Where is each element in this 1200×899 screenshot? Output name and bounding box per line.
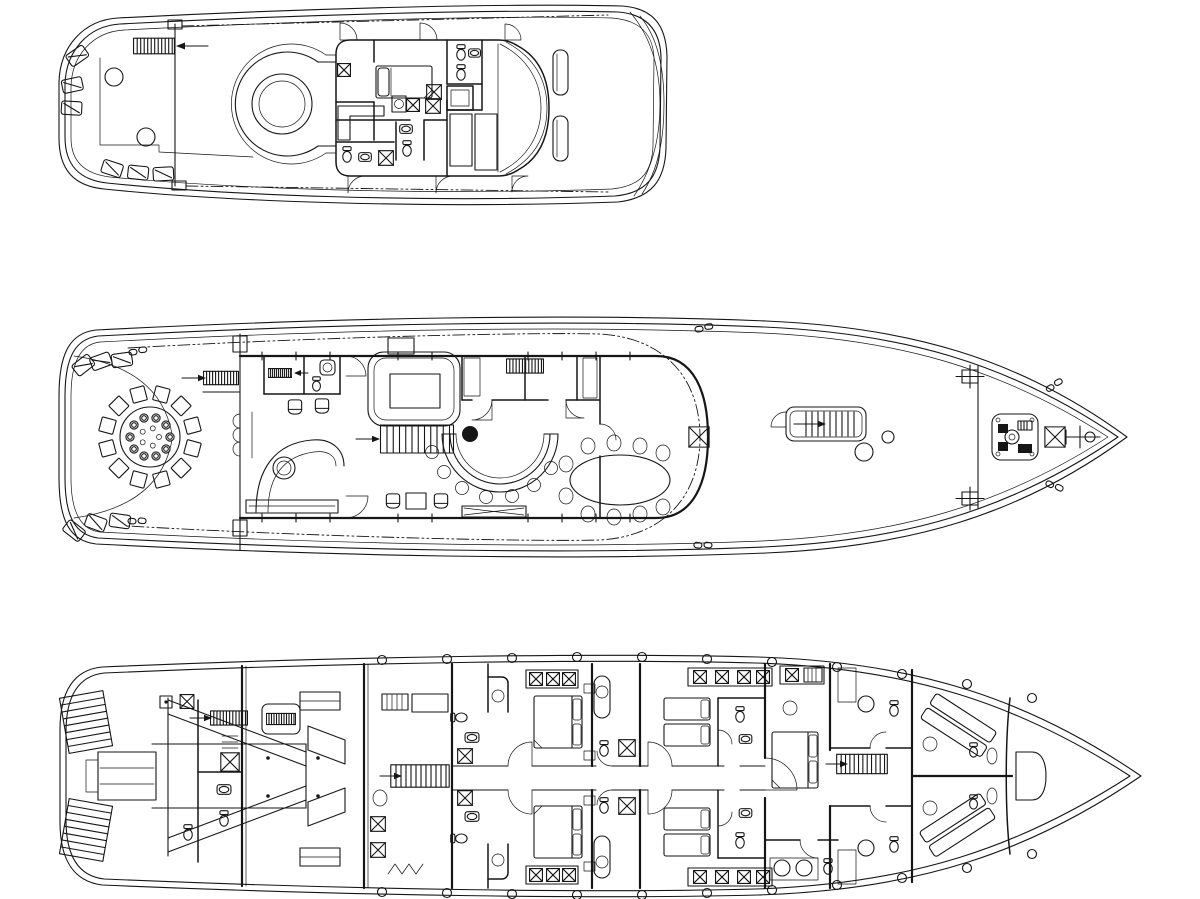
single-bed [664, 834, 710, 856]
door-swing [870, 806, 886, 822]
lazarette-garage [59, 666, 345, 886]
door-swing [508, 790, 532, 814]
sink [359, 153, 372, 162]
pantry-stairs [268, 369, 308, 378]
curved-sofa [246, 440, 344, 513]
fwd-stairs [826, 754, 887, 773]
nightstand [584, 862, 595, 871]
hanging-locker [388, 864, 423, 874]
toilet [736, 707, 745, 722]
cleat [694, 541, 713, 550]
round-dining-table [99, 386, 202, 489]
deckhouse [336, 23, 549, 193]
bar-stool [506, 490, 519, 503]
bar-stool [456, 482, 469, 495]
sink [400, 125, 413, 134]
laundry-xbox [371, 843, 386, 858]
nightstand [584, 684, 595, 693]
armchair [386, 494, 399, 508]
cocktail-table [105, 68, 123, 86]
crew-service-area [371, 664, 452, 888]
fwd-lobby [826, 664, 912, 888]
sink [858, 696, 874, 712]
door-swing [505, 24, 521, 40]
top-deck-plan [59, 5, 667, 204]
laundry-xbox [371, 817, 386, 832]
main-salon [246, 338, 460, 518]
toilet [403, 141, 412, 156]
chair [171, 396, 191, 416]
nightstand [584, 751, 595, 760]
counter [838, 668, 856, 702]
toilet [451, 834, 467, 843]
storage-xbox [180, 695, 194, 709]
counter [838, 850, 856, 884]
sun-cushion [61, 76, 84, 93]
locker [475, 114, 497, 170]
stairs-up [182, 371, 240, 392]
foredeck [771, 365, 1100, 510]
captain-bed [376, 66, 432, 98]
cocktail-table [137, 128, 155, 146]
crew-bunks [919, 793, 996, 857]
door-swing [600, 424, 616, 440]
anchor-windlass [992, 414, 1038, 460]
midship-bathrooms [592, 664, 640, 888]
chain-locker [1016, 752, 1046, 800]
shower [395, 100, 404, 109]
door-swing [765, 758, 797, 790]
top-deck-hull [59, 5, 667, 204]
deck-chair [84, 513, 108, 533]
toilet [736, 833, 745, 848]
transom-door [98, 752, 156, 800]
door-swing [340, 23, 357, 40]
bar-stool [438, 466, 451, 479]
stbd-fwd-twin-cabin [664, 790, 772, 886]
chair [130, 471, 148, 489]
shower-xbox [619, 740, 636, 757]
locker [450, 114, 472, 166]
door-swing [346, 496, 368, 518]
deck-box-xbox [689, 427, 709, 447]
cleat [1045, 479, 1064, 493]
door-swing [597, 751, 612, 766]
sun-cushion [153, 167, 174, 181]
chair [184, 440, 202, 458]
stbd-aft-guest-cabin [451, 791, 595, 888]
single-bed [664, 808, 710, 830]
toilet [451, 713, 467, 722]
port-fwd-twin-cabin [664, 668, 772, 766]
door-swing [718, 812, 732, 826]
swim-steps [59, 799, 112, 862]
formal-dining [559, 427, 709, 525]
bulwark-fitting [956, 365, 984, 388]
deck-hatch [855, 443, 873, 461]
shower-xbox [619, 798, 636, 815]
engine-room [262, 664, 368, 888]
skylight-atrium [368, 338, 460, 426]
sink [774, 860, 790, 876]
chair [171, 458, 191, 478]
bow-staff [1066, 426, 1100, 448]
helm-seats [553, 50, 568, 161]
storage-xbox [338, 64, 351, 77]
door-swing [420, 23, 437, 40]
credenza [462, 506, 526, 517]
deck-hatch [882, 431, 894, 443]
chair [109, 396, 129, 416]
bar [426, 426, 559, 504]
hot-tub [231, 44, 336, 164]
door-swing [718, 730, 732, 744]
yacht-deck-plan [0, 0, 1200, 899]
toilet [600, 798, 609, 813]
vip-cabin [765, 664, 838, 888]
console-desk [338, 106, 384, 140]
door-swing [870, 732, 886, 748]
companionway [771, 407, 866, 441]
chair [109, 458, 129, 478]
sun-cushion [100, 159, 124, 178]
top-deck-aft-lounge [61, 20, 253, 190]
door-swing [472, 400, 492, 420]
toilet [313, 377, 321, 391]
sink [923, 737, 937, 751]
double-bed [534, 806, 582, 858]
sink [465, 812, 479, 822]
armchair [434, 494, 447, 508]
shower-xbox [458, 749, 473, 764]
column [462, 426, 478, 442]
toilet [457, 45, 466, 60]
chair [153, 386, 171, 404]
sink [858, 840, 874, 856]
chair [184, 417, 202, 435]
windshield [500, 44, 541, 172]
sink [923, 801, 937, 815]
storage-xbox [426, 99, 441, 114]
sink [373, 790, 387, 806]
nightstand [584, 796, 595, 805]
toilet [457, 65, 466, 80]
toilet [890, 837, 899, 852]
storage-xbox [427, 85, 442, 100]
sink [217, 785, 231, 795]
window-mullions [262, 352, 630, 522]
lower-deck-plan [59, 653, 1141, 899]
door-swing [648, 790, 672, 814]
sink [739, 809, 752, 818]
corridor-stairs [380, 765, 449, 787]
galley-pantry [462, 356, 616, 518]
drawing-sheet [0, 0, 1200, 899]
sink [465, 733, 479, 743]
counter [583, 358, 597, 398]
sun-cushion [127, 165, 149, 180]
counter [464, 358, 480, 396]
shower-xbox [458, 791, 473, 806]
sink [596, 856, 608, 868]
door-swing [436, 176, 453, 193]
sink [783, 701, 797, 715]
toilet [890, 701, 899, 716]
port-aft-guest-cabin [451, 664, 595, 763]
sink [596, 686, 608, 698]
chair [99, 440, 117, 458]
cleat [1045, 378, 1064, 392]
chair [153, 471, 171, 489]
door-swing [512, 176, 528, 192]
chair [130, 386, 148, 404]
door-swing [346, 356, 366, 376]
door-swing [508, 742, 532, 766]
armchair [315, 399, 328, 413]
armchair [288, 400, 301, 414]
aft-deck [62, 334, 252, 550]
toilet [600, 741, 609, 756]
chair [99, 417, 117, 435]
single-bed [664, 698, 710, 720]
tender-chocks [152, 700, 345, 852]
swim-steps [59, 691, 112, 754]
toilet [343, 147, 352, 162]
sink [469, 49, 481, 57]
single-bed [664, 724, 710, 746]
main-deck-plan [59, 317, 1127, 557]
deck-hatch-xbox [1045, 427, 1065, 447]
main-deck-hull [59, 317, 1127, 557]
double-bed [534, 696, 582, 748]
sink [739, 735, 752, 744]
toilet [184, 825, 193, 840]
locker-xbox [221, 753, 239, 771]
storage-xbox [407, 99, 420, 112]
side-table [406, 493, 426, 509]
door-swing [566, 400, 584, 418]
sink [323, 363, 332, 372]
settee [233, 414, 240, 456]
sun-cushion [61, 101, 82, 115]
grand-staircase [356, 425, 454, 453]
sink [492, 690, 504, 702]
sink [796, 860, 812, 876]
shower-xbox [379, 151, 394, 166]
sink [492, 854, 504, 866]
engine-room-stairs [262, 704, 300, 734]
bar-stool [480, 491, 493, 504]
door-swing [800, 840, 818, 858]
stairs-down [134, 38, 208, 54]
bulwark-fitting [956, 487, 984, 510]
